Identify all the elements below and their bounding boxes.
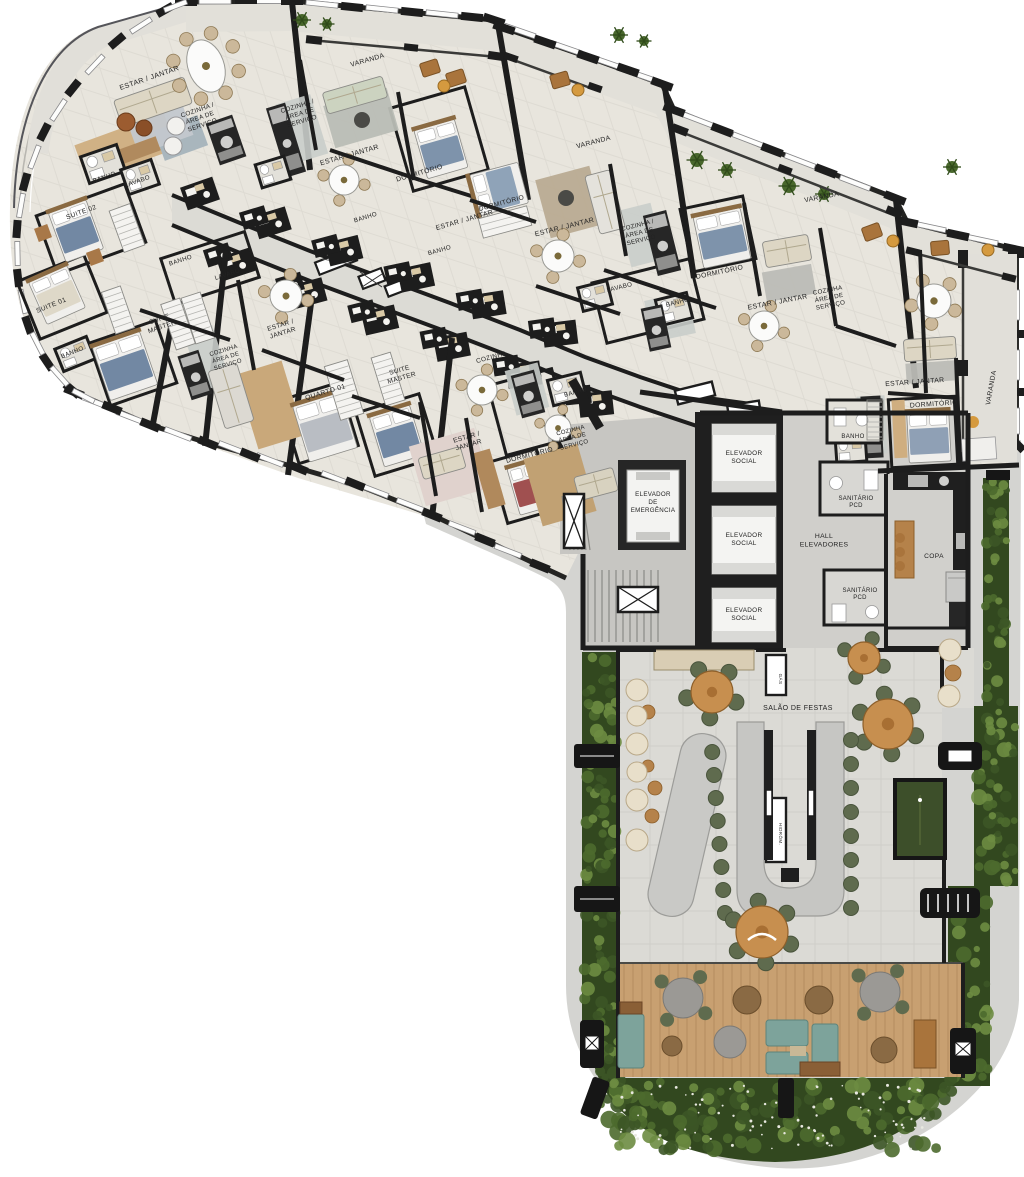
svg-text:ELEVADOR: ELEVADOR [726,532,763,539]
svg-text:SOCIAL: SOCIAL [731,615,756,622]
svg-text:HALL: HALL [815,533,833,540]
svg-text:HIDRÔM.: HIDRÔM. [778,823,784,845]
svg-text:DE: DE [648,499,657,506]
svg-text:COPA: COPA [924,553,944,560]
svg-text:PCD: PCD [853,595,867,601]
svg-text:ELEVADOR: ELEVADOR [726,607,763,614]
svg-text:SOCIAL: SOCIAL [731,458,756,465]
svg-text:ELEVADOR: ELEVADOR [635,491,671,498]
svg-text:SANITÁRIO: SANITÁRIO [838,495,873,502]
svg-text:BANHO: BANHO [841,434,864,440]
svg-text:ELEVADORES: ELEVADORES [800,542,849,549]
svg-text:SALÃO DE FESTAS: SALÃO DE FESTAS [763,703,833,712]
svg-text:PCD: PCD [849,503,863,509]
svg-text:EMERGÊNCIA: EMERGÊNCIA [631,506,676,514]
svg-text:SOCIAL: SOCIAL [731,540,756,547]
svg-text:ELEVADOR: ELEVADOR [726,450,763,457]
svg-text:SANITÁRIO: SANITÁRIO [842,587,877,594]
svg-text:GÁS: GÁS [778,674,784,685]
